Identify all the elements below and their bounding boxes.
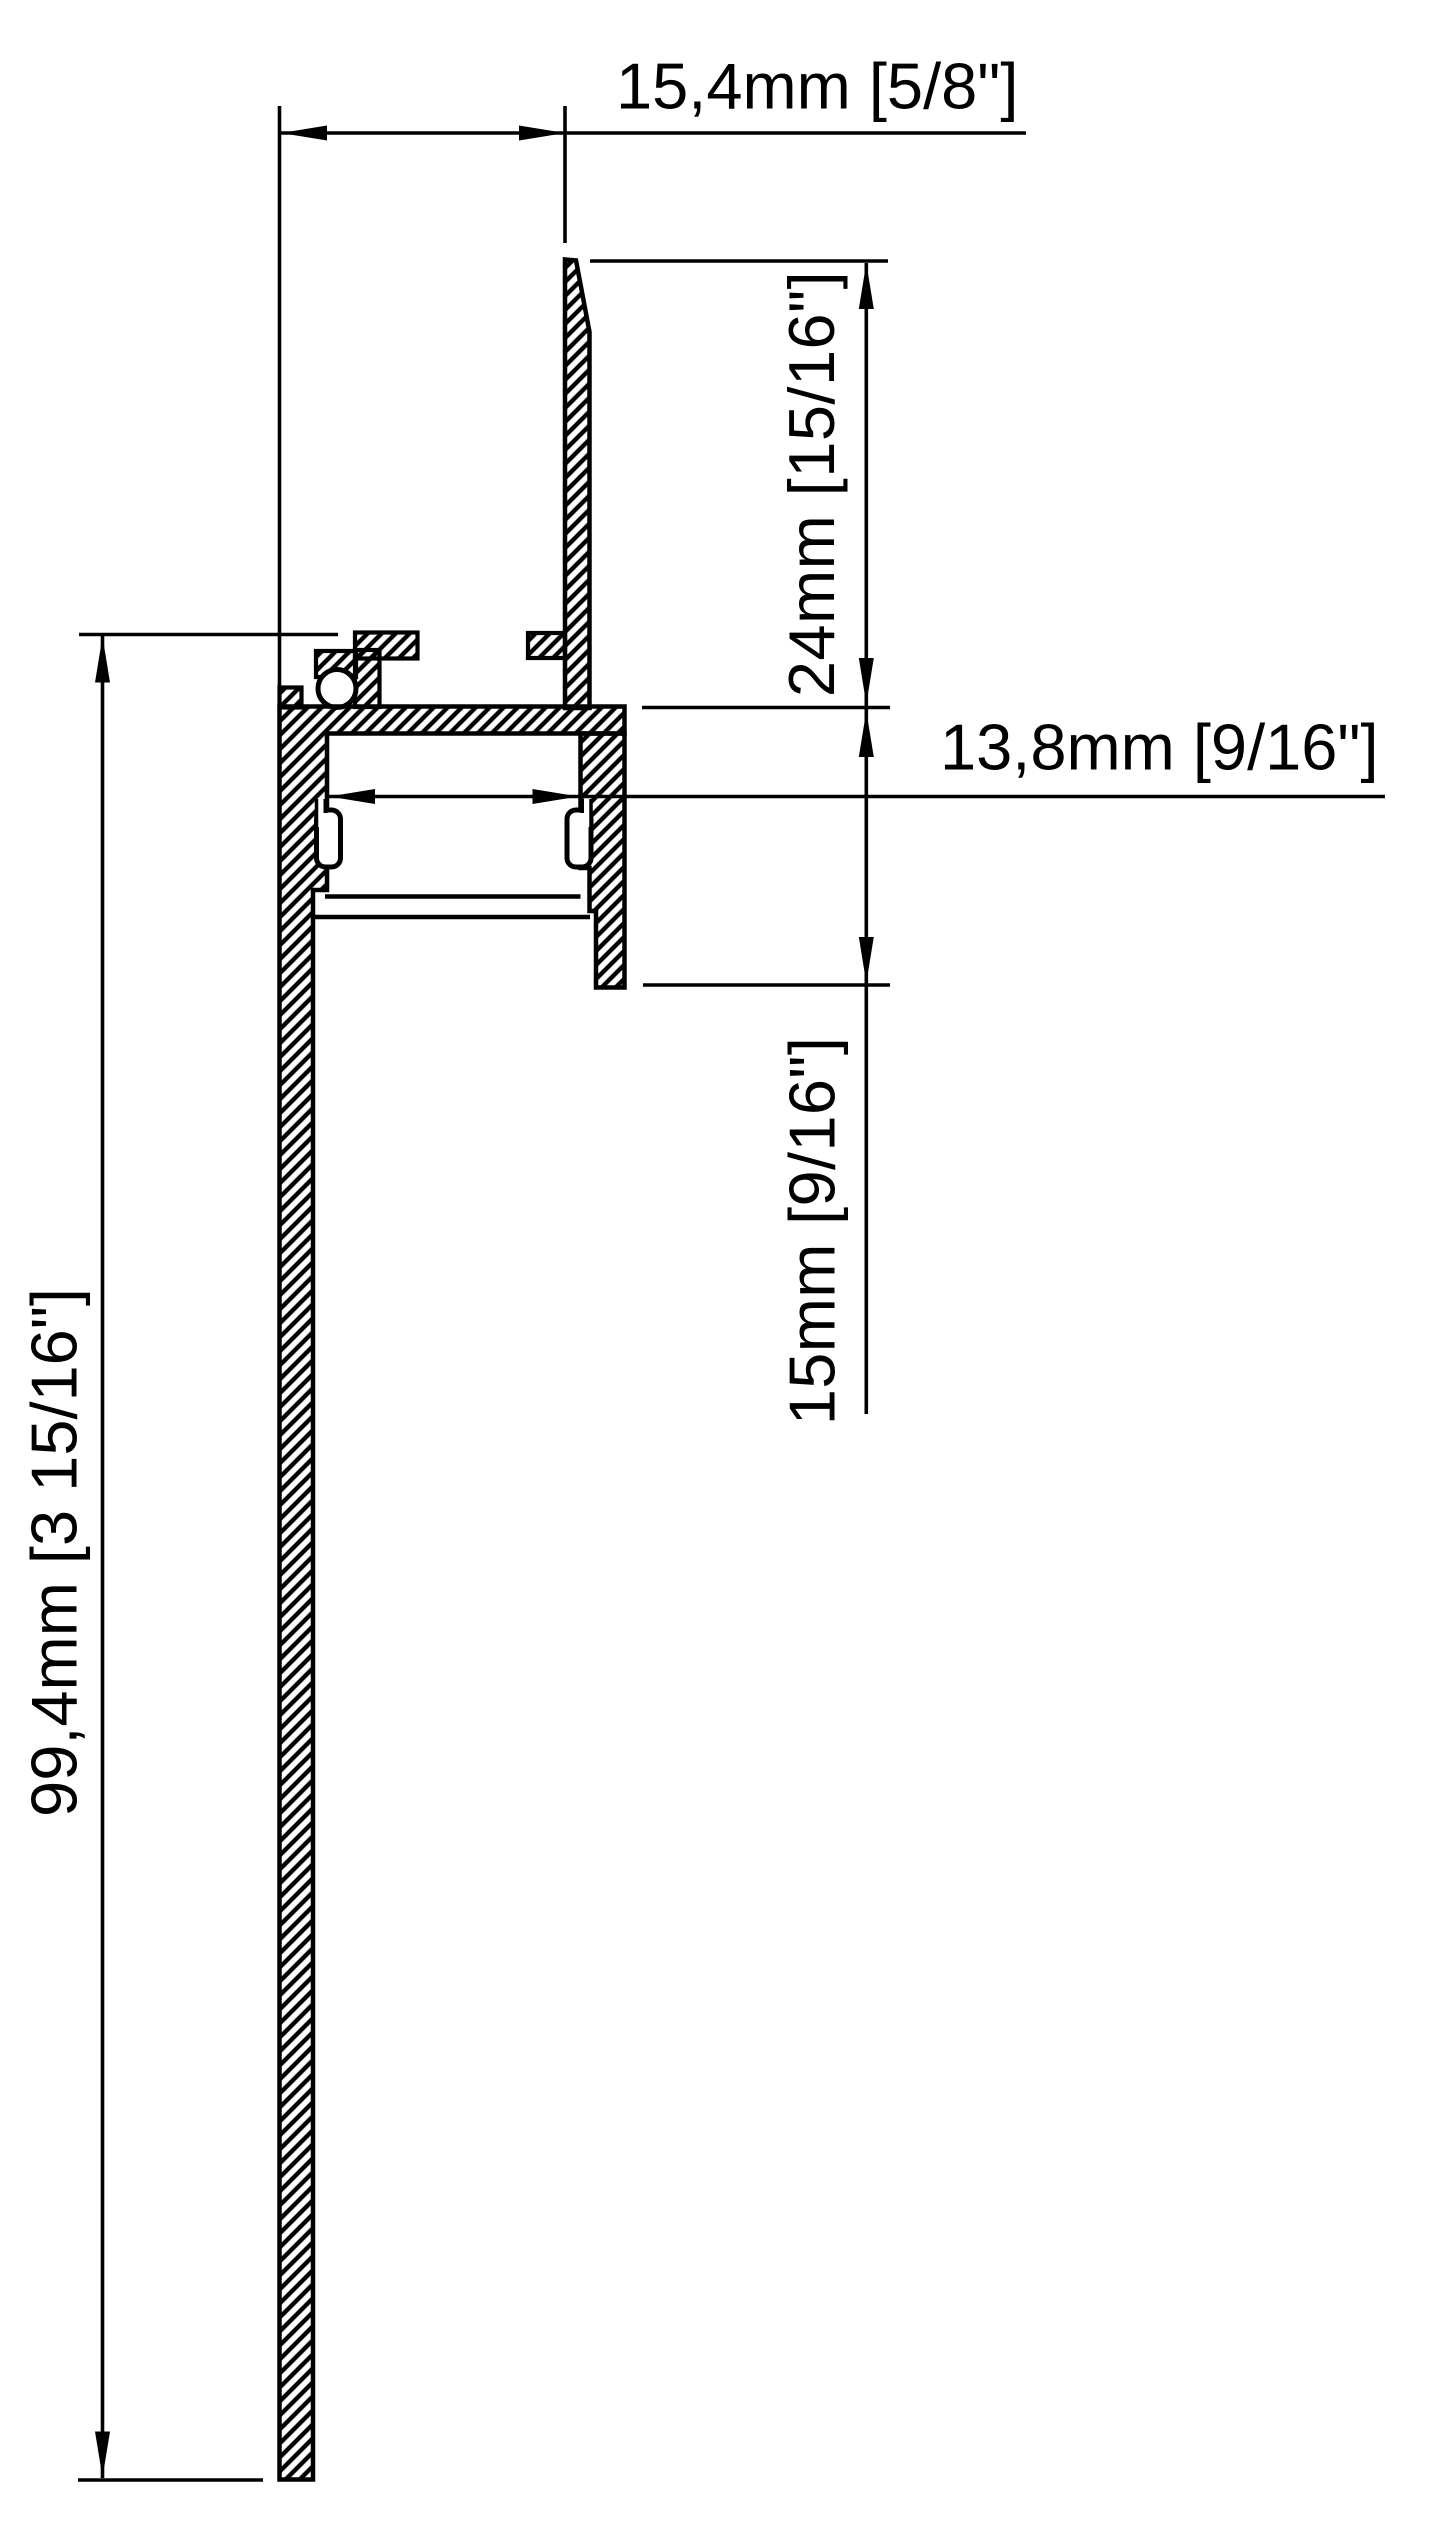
svg-text:15mm [9/16"]: 15mm [9/16"]: [776, 1037, 849, 1426]
svg-text:24mm [15/16"]: 24mm [15/16"]: [775, 271, 848, 697]
svg-text:15,4mm [5/8"]: 15,4mm [5/8"]: [616, 50, 1018, 123]
svg-text:99,4mm [3 15/16"]: 99,4mm [3 15/16"]: [18, 1288, 91, 1817]
svg-text:13,8mm [9/16"]: 13,8mm [9/16"]: [940, 711, 1379, 784]
